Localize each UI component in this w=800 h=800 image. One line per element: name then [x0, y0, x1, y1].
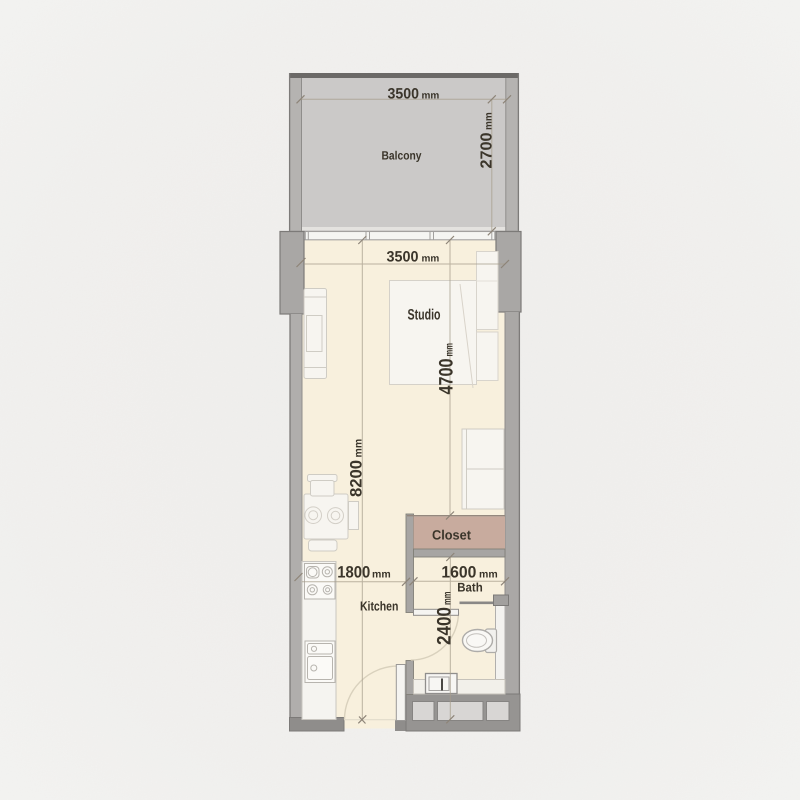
svg-text:mm: mm	[444, 343, 456, 357]
svg-text:2700: 2700	[479, 132, 496, 168]
svg-text:Kitchen: Kitchen	[360, 599, 399, 614]
svg-text:1600: 1600	[441, 564, 476, 582]
svg-text:2400: 2400	[434, 607, 456, 645]
svg-text:3500: 3500	[388, 85, 420, 102]
svg-text:mm: mm	[484, 112, 495, 130]
svg-text:Studio: Studio	[408, 307, 441, 324]
svg-text:Closet: Closet	[432, 528, 471, 543]
svg-text:mm: mm	[479, 569, 498, 581]
svg-text:Bath: Bath	[457, 580, 483, 594]
svg-text:8200: 8200	[348, 460, 366, 497]
svg-text:mm: mm	[372, 568, 391, 580]
svg-text:4700: 4700	[436, 358, 458, 394]
svg-text:mm: mm	[422, 90, 440, 101]
svg-text:mm: mm	[422, 253, 440, 264]
svg-text:1800: 1800	[337, 563, 370, 581]
svg-text:mm: mm	[353, 439, 365, 458]
svg-text:mm: mm	[442, 592, 454, 606]
svg-text:3500: 3500	[387, 248, 419, 265]
svg-text:Balcony: Balcony	[382, 148, 422, 162]
